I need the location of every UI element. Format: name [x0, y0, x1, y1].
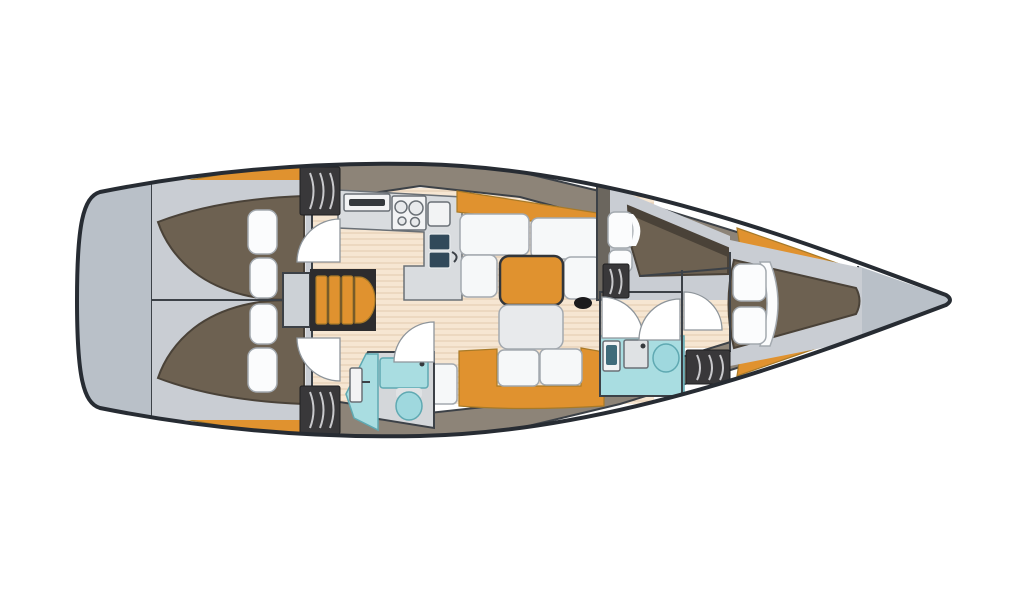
bow-anchor-locker — [858, 266, 952, 340]
pillow — [608, 212, 633, 248]
saloon-table-leaf — [499, 305, 563, 349]
pillow — [733, 307, 766, 344]
step-tread — [342, 276, 353, 324]
galley-sink — [429, 252, 450, 268]
pillow — [250, 258, 277, 298]
pillow — [250, 304, 277, 344]
settee-cushion — [564, 257, 601, 299]
mast-step — [574, 297, 592, 309]
shower-head — [641, 344, 646, 349]
stove-burner — [409, 201, 423, 215]
settee-cushion — [531, 218, 601, 259]
companionway — [283, 269, 376, 331]
deck-plan-svg — [0, 0, 1024, 600]
toilet — [653, 344, 679, 372]
settee-cushion — [540, 349, 582, 385]
pillow — [733, 264, 766, 301]
stove-burner — [395, 201, 407, 213]
saloon-table — [500, 256, 563, 305]
settee-cushion — [460, 214, 529, 255]
stove-burner — [411, 218, 420, 227]
galley-sink — [429, 234, 450, 250]
toilet — [396, 392, 422, 420]
locker-mid — [603, 264, 629, 298]
companionway-landing — [283, 273, 310, 327]
aft-head-sink — [350, 368, 362, 402]
pillow — [248, 348, 277, 392]
settee-cushion — [498, 350, 539, 386]
step-tread — [316, 276, 327, 324]
transom-platform — [77, 182, 152, 418]
instrument-panel-slot — [349, 199, 385, 206]
forward-head-basin — [606, 345, 617, 365]
counter-cover — [428, 202, 450, 226]
yacht-floor-plan-image — [0, 0, 1024, 600]
stove-burner — [398, 217, 406, 225]
step-tread — [329, 276, 340, 324]
settee-cushion — [461, 255, 497, 297]
pillow — [248, 210, 277, 254]
